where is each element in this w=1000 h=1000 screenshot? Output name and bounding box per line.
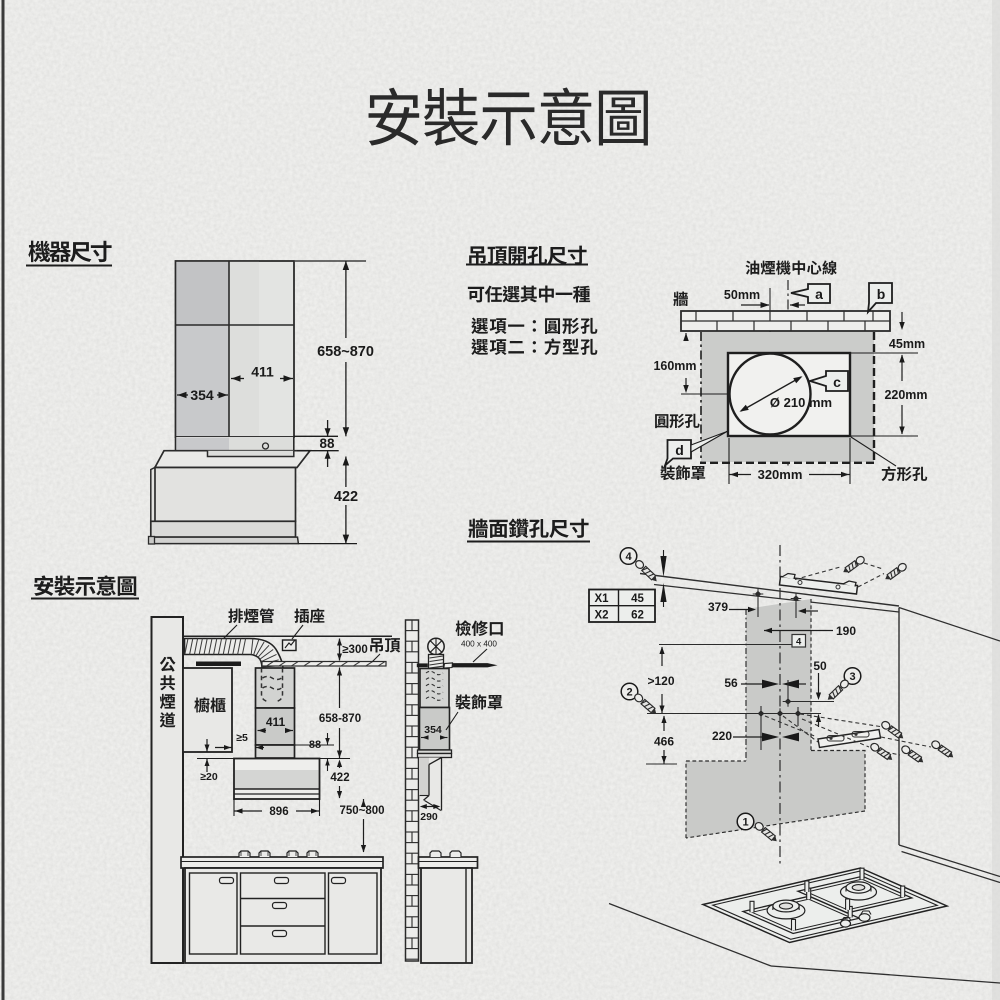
svg-text:a: a <box>815 286 823 302</box>
svg-text:220mm: 220mm <box>884 388 927 402</box>
svg-text:320mm: 320mm <box>758 467 803 482</box>
svg-text:4: 4 <box>796 636 802 647</box>
svg-text:88: 88 <box>309 739 321 751</box>
svg-text:X2: X2 <box>594 610 608 622</box>
svg-text:190: 190 <box>836 624 856 638</box>
svg-text:422: 422 <box>334 489 358 505</box>
svg-text:45: 45 <box>631 593 644 605</box>
svg-text:≥5: ≥5 <box>236 732 248 744</box>
svg-text:b: b <box>877 286 886 302</box>
svg-text:750~800: 750~800 <box>339 805 384 817</box>
svg-text:411: 411 <box>266 715 286 729</box>
svg-text:290: 290 <box>420 811 438 823</box>
svg-text:50mm: 50mm <box>724 288 760 302</box>
svg-text:≥300: ≥300 <box>342 644 368 656</box>
svg-text:422: 422 <box>330 772 349 784</box>
svg-text:Ø 210 mm: Ø 210 mm <box>770 395 832 410</box>
svg-text:2: 2 <box>626 686 632 698</box>
svg-text:45mm: 45mm <box>889 337 925 351</box>
svg-text:411: 411 <box>251 364 274 380</box>
svg-text:62: 62 <box>631 610 644 622</box>
svg-text:220: 220 <box>712 729 732 743</box>
svg-text:896: 896 <box>269 806 288 818</box>
svg-text:≥20: ≥20 <box>200 771 218 783</box>
svg-text:658-870: 658-870 <box>319 713 361 725</box>
svg-text:d: d <box>675 442 684 458</box>
svg-text:400 x 400: 400 x 400 <box>461 640 497 649</box>
svg-text:160mm: 160mm <box>653 359 696 373</box>
svg-text:56: 56 <box>724 676 738 690</box>
svg-text:354: 354 <box>424 724 442 736</box>
svg-text:354: 354 <box>190 387 214 403</box>
svg-text:88: 88 <box>319 436 335 451</box>
svg-text:>120: >120 <box>647 674 674 688</box>
svg-text:X1: X1 <box>594 593 609 605</box>
svg-text:1: 1 <box>742 816 748 828</box>
svg-text:c: c <box>833 374 841 390</box>
svg-text:50: 50 <box>813 659 827 673</box>
svg-text:4: 4 <box>625 551 632 563</box>
svg-text:379: 379 <box>708 600 728 614</box>
svg-text:3: 3 <box>849 671 855 683</box>
svg-text:658~870: 658~870 <box>317 344 374 360</box>
svg-text:466: 466 <box>654 735 674 749</box>
